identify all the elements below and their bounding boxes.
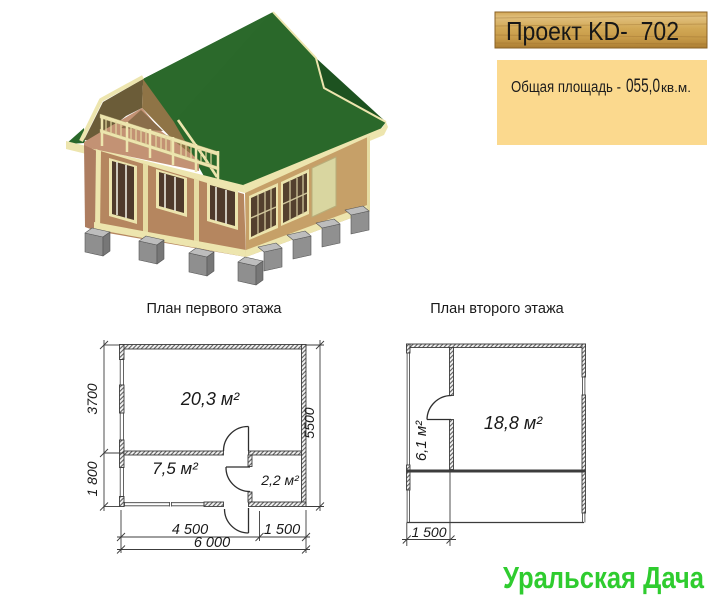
svg-text:Общая площадь -: Общая площадь - bbox=[511, 79, 621, 96]
svg-text:кв.м.: кв.м. bbox=[661, 81, 691, 95]
svg-text:2,2 м²: 2,2 м² bbox=[260, 472, 300, 488]
svg-text:Проект KD- 702: Проект KD- 702 bbox=[506, 16, 679, 46]
svg-text:055,0: 055,0 bbox=[626, 76, 660, 97]
svg-text:1 800: 1 800 bbox=[84, 461, 100, 496]
svg-text:18,8 м²: 18,8 м² bbox=[484, 413, 543, 433]
svg-text:5500: 5500 bbox=[301, 407, 317, 438]
svg-text:6,1 м²: 6,1 м² bbox=[413, 420, 430, 461]
svg-text:Уральская Дача: Уральская Дача bbox=[503, 560, 705, 595]
svg-text:План первого этажа: План первого этажа bbox=[146, 301, 282, 317]
svg-text:1 500: 1 500 bbox=[264, 522, 300, 538]
svg-text:6 000: 6 000 bbox=[194, 535, 230, 551]
svg-text:7,5 м²: 7,5 м² bbox=[152, 459, 199, 478]
svg-text:1 500: 1 500 bbox=[411, 524, 446, 540]
svg-text:20,3 м²: 20,3 м² bbox=[180, 389, 240, 409]
svg-text:3700: 3700 bbox=[84, 383, 100, 414]
svg-text:План второго этажа: План второго этажа bbox=[430, 301, 564, 317]
